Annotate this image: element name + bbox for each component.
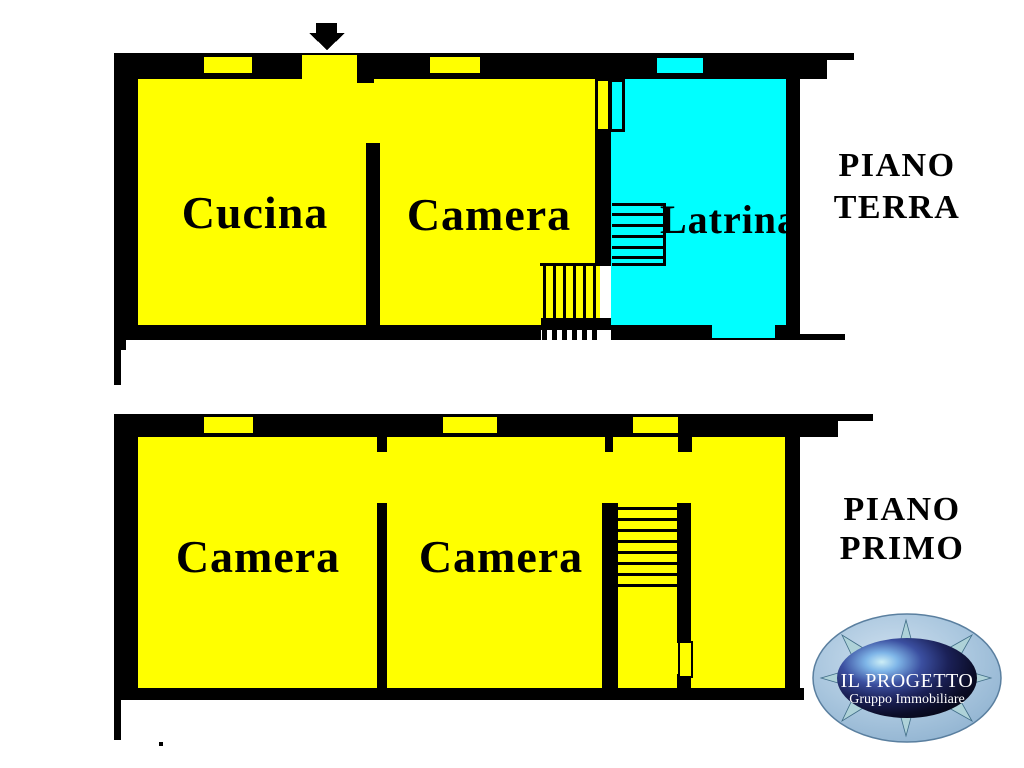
wall-below-left-line <box>114 340 121 385</box>
room-label-camera-right: Camera <box>419 531 583 582</box>
wall-stairwell-left-stub <box>605 437 613 452</box>
window-stairwell <box>633 417 678 433</box>
stray-dot-mark <box>159 742 163 746</box>
wall-divider-stub <box>377 437 387 452</box>
stair-tread <box>612 213 664 216</box>
stair-tread-foot <box>572 330 577 340</box>
stair-tread <box>618 540 677 543</box>
door-latrina-bottom-exit <box>712 325 775 338</box>
room-label-camera-left: Camera <box>176 531 340 582</box>
floor-title-ground-line2: TERRA <box>834 189 961 226</box>
stair-tread <box>612 256 664 259</box>
agency-logo: IL PROGETTO Gruppo Immobiliare <box>813 614 1001 742</box>
floor-title-first-line1: PIANO <box>843 491 960 528</box>
stair-tread <box>612 224 664 227</box>
window-camera-left <box>204 417 253 433</box>
floor-plan-drawing: Cucina Camera Latrina PIANO TERRA <box>0 0 1024 768</box>
wall-bottom <box>114 688 804 700</box>
wall-left <box>114 53 138 340</box>
wall-bottom <box>114 325 800 340</box>
wall-left <box>114 414 138 700</box>
room-label-camera: Camera <box>407 189 571 240</box>
stair-tread <box>618 562 677 565</box>
wall-stairwell-left <box>602 503 618 688</box>
wall-right <box>785 414 800 700</box>
wall-cucina-camera-divider <box>366 143 380 325</box>
stair-tread-foot <box>562 330 567 340</box>
stair-tread <box>618 584 677 587</box>
stair-tread-foot <box>542 330 547 340</box>
door-leaf-camera-side <box>598 81 608 129</box>
stair-tread-foot <box>582 330 587 340</box>
floor-title-first-line2: PRIMO <box>840 530 965 567</box>
ground-floor-plan: Cucina Camera Latrina PIANO TERRA <box>114 23 960 385</box>
wall-stairwell-right-stub <box>678 437 692 452</box>
wall-divider-stub <box>357 53 374 83</box>
wall-camera-latrina <box>595 130 611 266</box>
window-cucina <box>204 57 252 73</box>
wall-camera-camera-divider <box>377 503 387 688</box>
stair-tread <box>618 518 677 521</box>
stair-tread <box>612 246 664 249</box>
stair-tread <box>618 551 677 554</box>
wall-bottom-thin-extension <box>800 334 845 340</box>
wall-top-thin-extension <box>827 53 854 60</box>
window-latrina <box>657 58 703 73</box>
door-leaf-stairwell <box>680 643 691 676</box>
entrance-opening <box>302 55 357 81</box>
door-leaf-latrina-side <box>612 82 622 129</box>
stair-tread <box>612 203 664 206</box>
stair-tread-foot <box>552 330 557 340</box>
stair-tread <box>618 573 677 576</box>
floor-title-ground-line1: PIANO <box>838 147 955 184</box>
room-label-latrina: Latrina <box>660 197 798 242</box>
stair-landing-line <box>540 263 611 266</box>
stair-tread <box>618 507 677 510</box>
stair-tread <box>612 263 664 266</box>
wall-stairwell-right-upper <box>677 503 691 643</box>
logo-subtitle: Gruppo Immobiliare <box>849 692 964 707</box>
wall-below-left-line <box>114 700 121 740</box>
window-camera <box>430 57 480 73</box>
wall-top-thin-extension <box>838 414 873 421</box>
window-camera-right <box>443 417 497 433</box>
stair-tread <box>612 235 664 238</box>
stair-threshold-band <box>541 318 611 330</box>
stair-tread-foot <box>592 330 597 340</box>
floor-plan-page: Cucina Camera Latrina PIANO TERRA <box>0 0 1024 768</box>
room-label-cucina: Cucina <box>182 187 329 238</box>
logo-company-name: IL PROGETTO <box>841 670 974 692</box>
stair-tread <box>618 529 677 532</box>
entrance-arrow-icon <box>309 23 345 50</box>
